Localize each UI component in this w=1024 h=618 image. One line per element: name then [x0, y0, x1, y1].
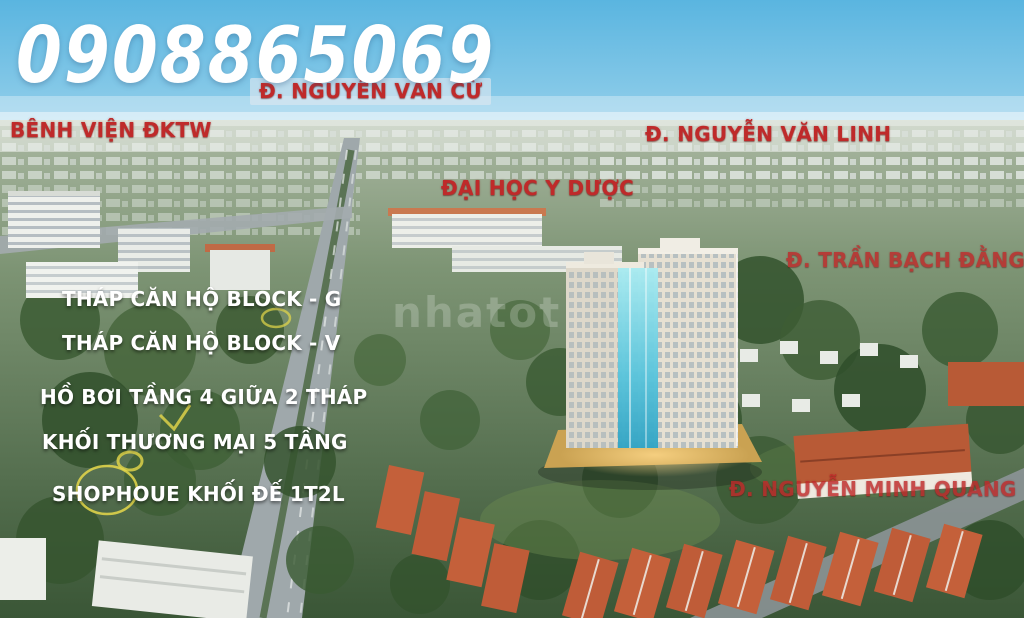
leader-line-block-g: [355, 298, 573, 303]
central-tower: [538, 238, 762, 490]
label-dai-hoc-y-duoc: ĐẠI HỌC Y DƯỢC: [441, 176, 634, 200]
leader-line-commercial: [352, 439, 577, 444]
label-nguyen-minh-quang: Đ. NGUYỄN MINH QUANG: [729, 477, 1017, 501]
real-estate-poster: Đ. NGUYỄN VĂN CỪ BÊNH VIỆN ĐKTW Đ. NGUYỄ…: [0, 0, 1024, 618]
label-commercial: KHỐI THƯƠNG MẠI 5 TẦNG: [42, 430, 348, 454]
leader-line-block-v: [355, 343, 613, 348]
leader-line-shophouse: [352, 491, 612, 496]
left-edge-building: [0, 538, 46, 600]
label-benh-vien-dktw: BÊNH VIỆN ĐKTW: [10, 118, 212, 142]
watermark: nhatot: [392, 288, 561, 337]
tower-glass-core: [618, 268, 658, 448]
leader-line-pool: [352, 396, 588, 401]
label-tran-bach-dang: Đ. TRẦN BẠCH ĐẰNG: [786, 248, 1024, 272]
label-shophouse: SHOPHOUE KHỐI ĐẾ 1T2L: [52, 482, 345, 506]
label-block-g: THÁP CĂN HỘ BLOCK - G: [62, 287, 341, 311]
label-nguyen-van-linh: Đ. NGUYỄN VĂN LINH: [645, 122, 891, 146]
label-block-v: THÁP CĂN HỘ BLOCK - V: [62, 331, 340, 355]
corner-building: [948, 362, 1024, 406]
contact-phone-overlay: 0908865069: [16, 10, 495, 101]
label-pool: HỒ BƠI TẦNG 4 GIỮA 2 THÁP: [40, 385, 367, 409]
